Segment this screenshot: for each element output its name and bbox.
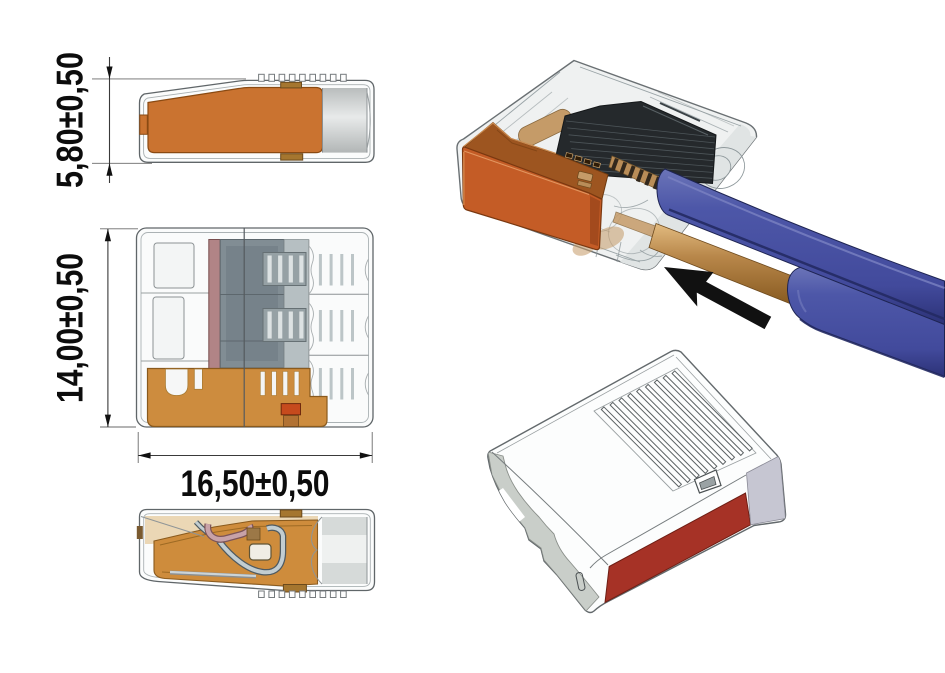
svg-text:16,50±0,50: 16,50±0,50: [181, 463, 330, 504]
svg-text:14,00±0,50: 14,00±0,50: [50, 253, 91, 403]
svg-text:5,80±0,50: 5,80±0,50: [50, 52, 91, 188]
